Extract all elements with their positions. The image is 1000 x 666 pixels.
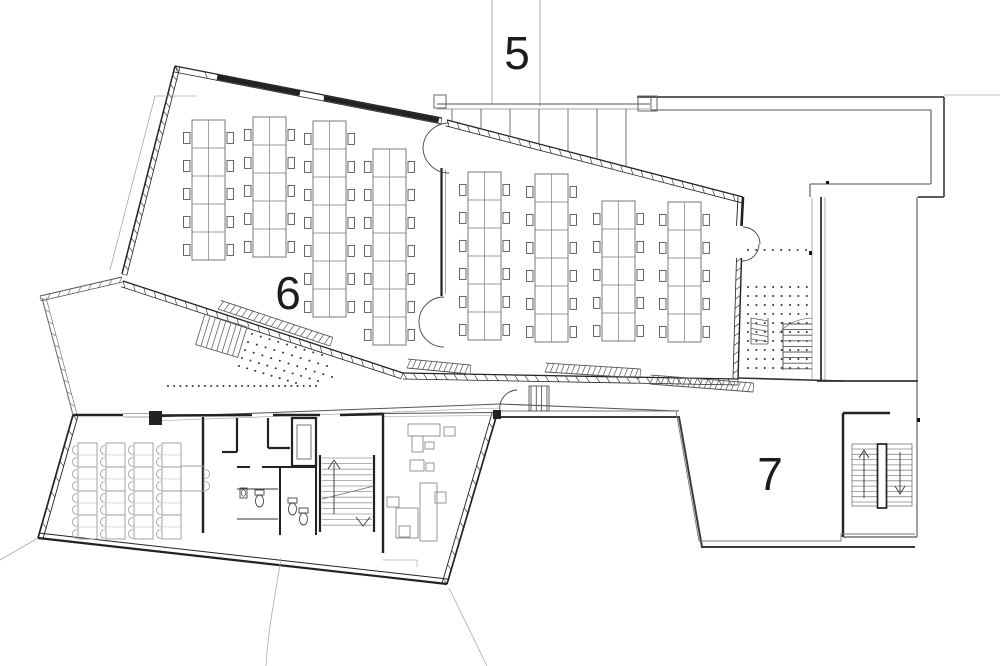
lower-room-desks-layer [73, 443, 210, 539]
floor-plan-page: 5 6 7 [0, 0, 1000, 666]
office-desks-layer [387, 424, 455, 541]
glazing-mullions-layer [452, 109, 626, 167]
zone-label-5: 5 [504, 27, 530, 79]
zone-label-7: 7 [757, 448, 783, 500]
floor-plan-drawing: 5 6 7 [0, 0, 1000, 666]
stair-arrows-layer [328, 450, 905, 526]
zone-label-6: 6 [275, 267, 301, 319]
stairs-layer [196, 314, 912, 525]
doors-and-curves-layer [266, 123, 812, 666]
big-room-desks-layer [184, 117, 710, 345]
